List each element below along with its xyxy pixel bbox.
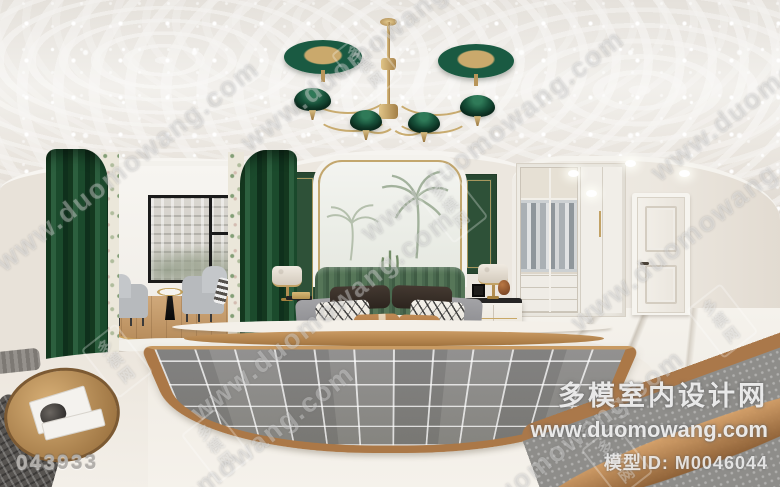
lamp-base [487,296,499,299]
ceiling-spotlight [586,190,597,197]
lamp-stem [492,285,495,296]
photo-frame [472,284,485,297]
shade-finial [474,74,478,86]
door-handle [640,262,649,265]
table-top [157,288,183,296]
shade-finial [321,70,325,82]
chandelier-ring-shade-right [438,44,514,78]
ceiling-spotlight [625,160,636,167]
deco-gold-books [292,292,310,299]
panorama-canvas: www.duomowang.com www.duomowang.com www.… [0,0,780,487]
ceiling-spotlight [568,170,579,177]
gold-panel-trim [467,180,491,268]
bedroom-door [637,197,685,313]
glass-door-mullion [549,168,551,312]
wardrobe [516,163,626,317]
chandelier-bowl-shade [294,88,331,111]
green-glass-shade [438,44,514,78]
amber-glass-vase [498,280,510,295]
door-panel-bottom [645,265,677,304]
door-panel-top [645,206,677,252]
chandelier-bowl-shade [350,110,382,131]
green-wall-panel-right [461,174,497,274]
chandelier-bowl-shade [408,112,440,133]
chandelier-collar [381,58,396,70]
table-pedestal [165,294,175,320]
camel-throw-band [184,331,604,346]
lounge-chair-right [182,276,224,314]
palm-mural [318,160,462,282]
chair-legs [118,318,144,326]
wardrobe-glass-doors [520,167,578,313]
wardrobe-solid-doors [580,167,622,313]
ceiling-spotlight [679,170,690,177]
lamp-shade [272,266,302,287]
lounge-chair-left [114,284,148,318]
chair-legs [186,314,220,322]
chandelier-ring-shade-left [284,40,362,74]
palm-mural-art [320,162,460,280]
chandelier-bowl-shade [460,95,495,117]
chandelier-hub [379,104,398,119]
green-glass-shade [284,40,362,74]
wardrobe-handle [599,211,601,237]
balcony-side-table [157,288,183,322]
